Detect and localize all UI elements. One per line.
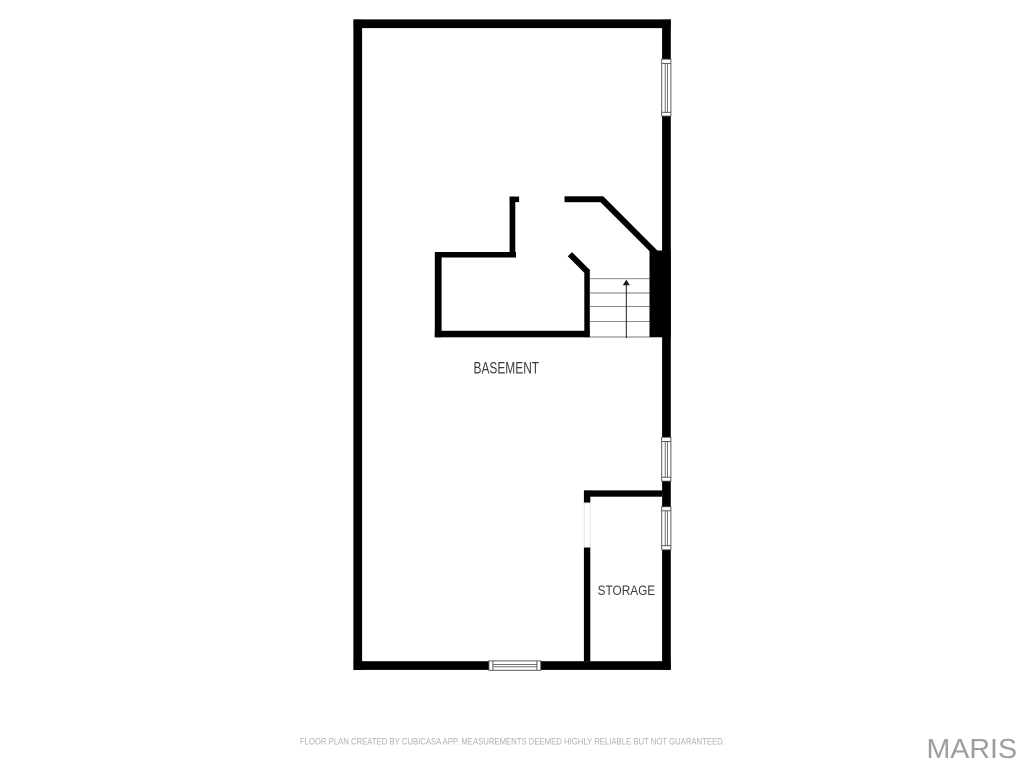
svg-text:MARIS: MARIS bbox=[927, 733, 1018, 764]
svg-text:FLOOR PLAN CREATED BY CUBICASA: FLOOR PLAN CREATED BY CUBICASA APP. MEAS… bbox=[300, 736, 725, 747]
svg-text:BASEMENT: BASEMENT bbox=[474, 359, 540, 378]
svg-text:STORAGE: STORAGE bbox=[598, 583, 656, 599]
